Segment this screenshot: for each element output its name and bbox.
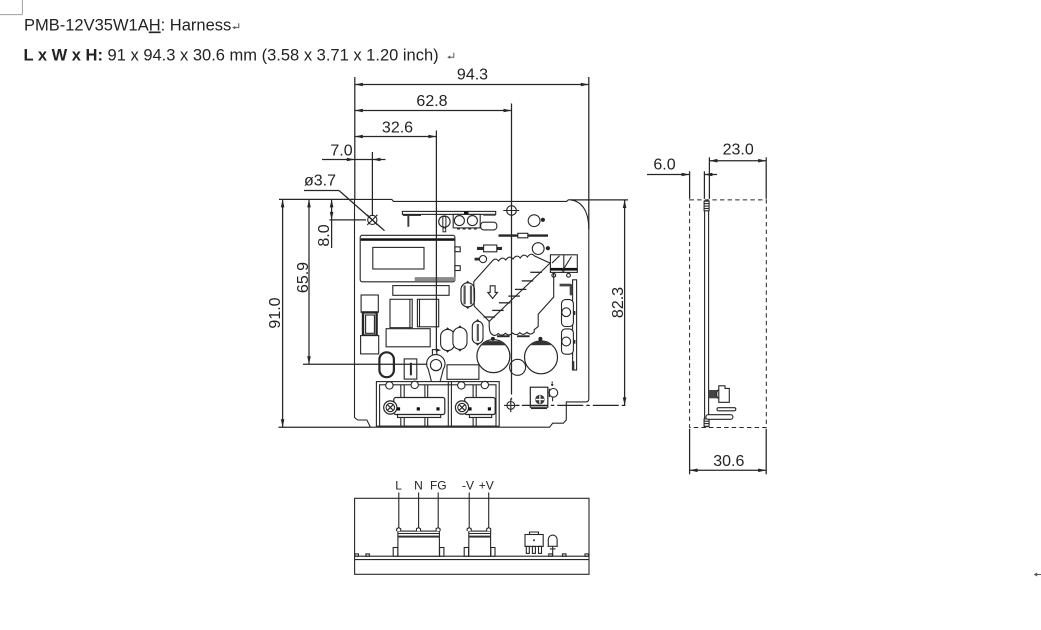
svg-text:62.8: 62.8 (416, 93, 447, 110)
svg-text:91.0: 91.0 (267, 297, 284, 328)
svg-text:7.0: 7.0 (330, 143, 352, 160)
svg-text:FG: FG (430, 479, 447, 493)
svg-text:82.3: 82.3 (610, 287, 627, 318)
svg-text:-V: -V (462, 479, 474, 493)
svg-text:L x W x H: 91 x 94.3 x 30.6 mm: L x W x H: 91 x 94.3 x 30.6 mm (3.58 x 3… (24, 47, 439, 65)
svg-text:6.0: 6.0 (653, 157, 675, 174)
svg-text:32.6: 32.6 (382, 120, 413, 137)
svg-text:L: L (395, 479, 402, 493)
svg-text:23.0: 23.0 (723, 142, 754, 159)
svg-text:30.6: 30.6 (713, 453, 744, 470)
svg-text:N: N (414, 479, 423, 493)
svg-text:ø3.7: ø3.7 (304, 173, 336, 190)
svg-text:65.9: 65.9 (295, 262, 312, 293)
svg-text:94.3: 94.3 (457, 67, 488, 84)
svg-text:PMB-12V35W1AH: Harness: PMB-12V35W1AH: Harness (24, 17, 231, 35)
svg-text:8.0: 8.0 (316, 224, 333, 246)
svg-text:+V: +V (479, 479, 494, 493)
